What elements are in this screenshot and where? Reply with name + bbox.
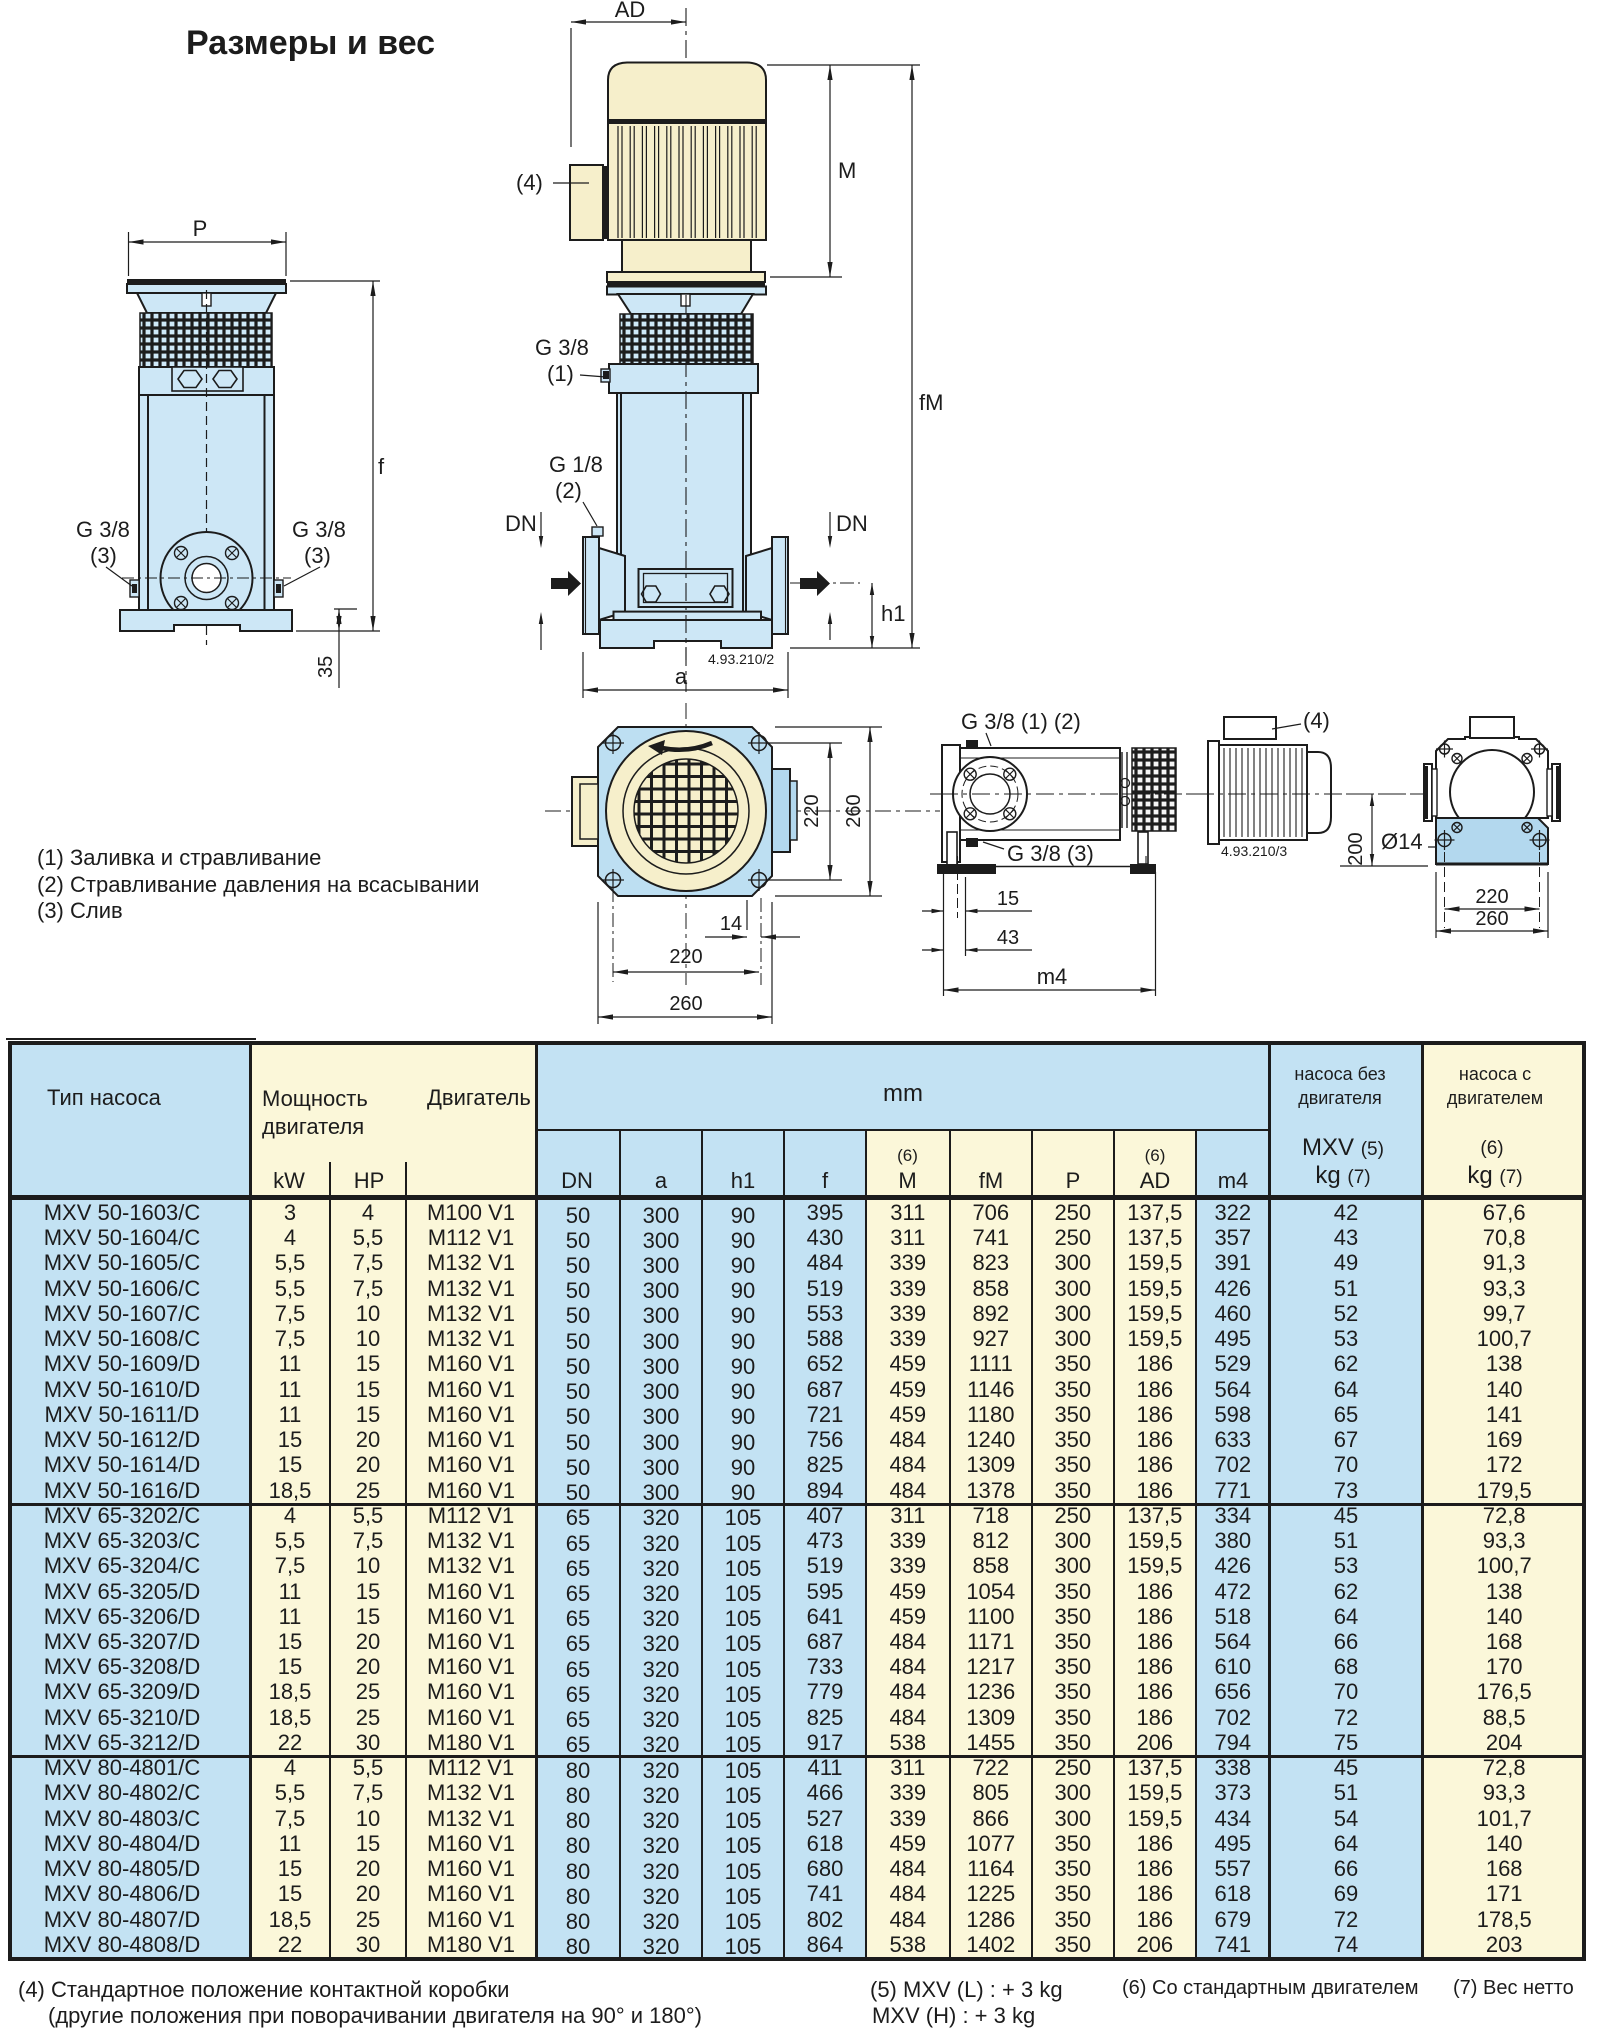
svg-text:G 3/8: G 3/8	[535, 335, 589, 360]
svg-text:220: 220	[669, 946, 702, 968]
svg-text:f: f	[378, 454, 385, 479]
svg-text:DN: DN	[505, 511, 537, 536]
svg-text:14: 14	[720, 913, 742, 935]
svg-text:200: 200	[1345, 832, 1367, 865]
svg-text:M: M	[838, 158, 856, 183]
svg-text:G 3/8: G 3/8	[292, 517, 346, 542]
svg-text:Ø14: Ø14	[1381, 829, 1423, 854]
svg-text:(1): (1)	[547, 361, 574, 386]
svg-text:DN: DN	[836, 511, 868, 536]
svg-text:(2): (2)	[555, 478, 582, 503]
svg-text:15: 15	[997, 888, 1019, 910]
svg-text:43: 43	[997, 927, 1019, 949]
svg-text:(4): (4)	[516, 170, 543, 195]
svg-text:G 3/8 (3): G 3/8 (3)	[1007, 841, 1094, 866]
svg-text:4.93.210/3: 4.93.210/3	[1221, 843, 1287, 859]
svg-text:260: 260	[843, 794, 865, 827]
svg-text:h1: h1	[881, 601, 905, 626]
svg-text:G 3/8: G 3/8	[76, 517, 130, 542]
svg-text:220: 220	[1475, 886, 1508, 908]
svg-text:(3): (3)	[90, 543, 117, 568]
svg-text:260: 260	[1475, 908, 1508, 930]
svg-text:m4: m4	[1037, 964, 1068, 989]
svg-text:260: 260	[669, 993, 702, 1015]
svg-text:AD: AD	[615, 0, 646, 22]
svg-text:P: P	[193, 216, 208, 241]
svg-text:4.93.210/2: 4.93.210/2	[708, 651, 774, 667]
svg-text:(3): (3)	[304, 543, 331, 568]
svg-text:G 1/8: G 1/8	[549, 452, 603, 477]
svg-text:220: 220	[801, 794, 823, 827]
svg-text:fM: fM	[919, 390, 943, 415]
svg-text:(4): (4)	[1303, 708, 1330, 733]
svg-text:G 3/8 (1) (2): G 3/8 (1) (2)	[961, 709, 1081, 734]
svg-text:a: a	[675, 664, 688, 689]
svg-text:35: 35	[315, 656, 337, 678]
